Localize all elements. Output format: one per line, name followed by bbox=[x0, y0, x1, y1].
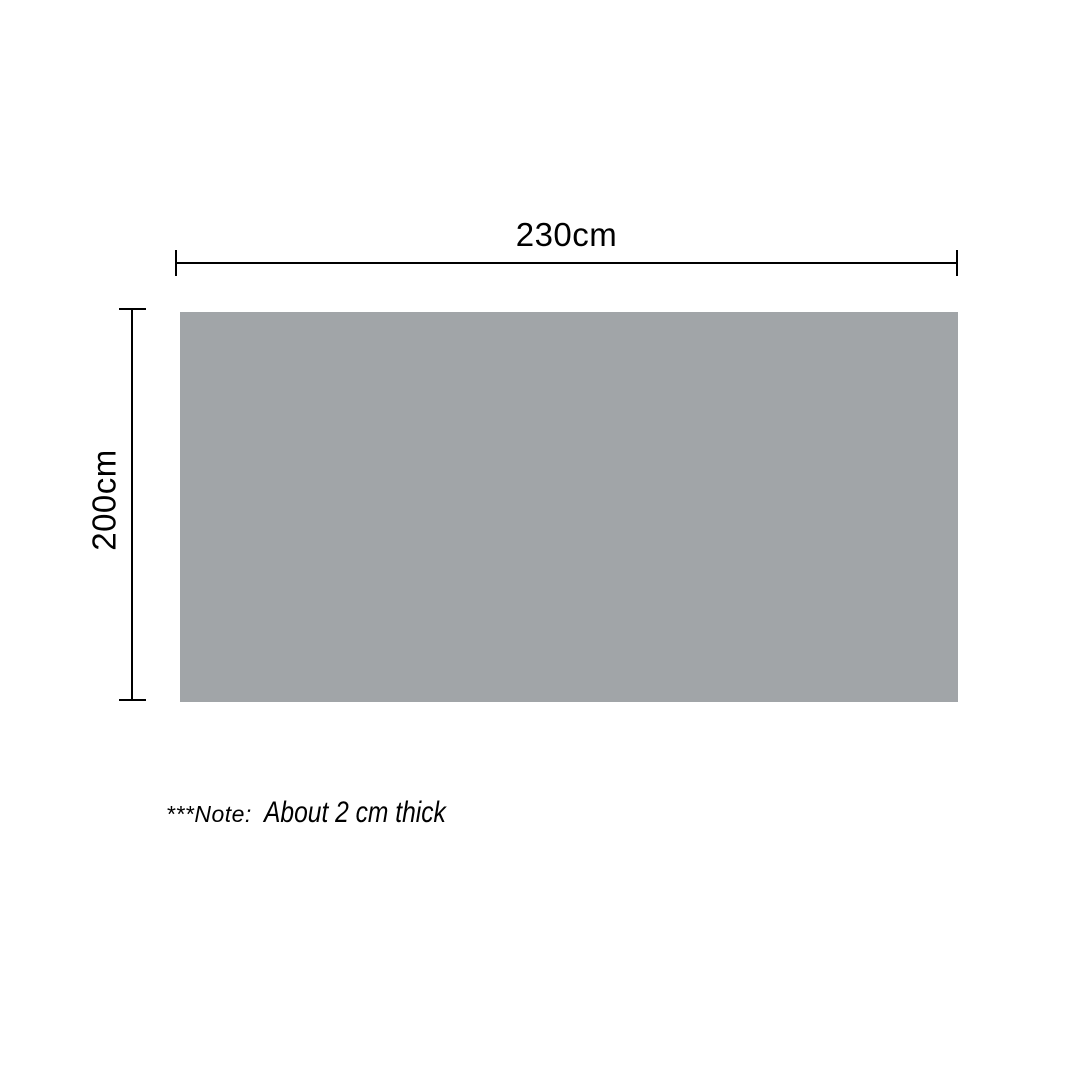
height-dimension-line bbox=[131, 308, 133, 701]
height-dimension-tick-bottom bbox=[119, 699, 146, 701]
thickness-note-text: About 2 cm thick bbox=[264, 796, 446, 830]
height-dimension-tick-top bbox=[119, 308, 146, 310]
width-dimension-label: 230cm bbox=[175, 218, 958, 251]
thickness-note: ***Note: About 2 cm thick bbox=[166, 796, 486, 830]
width-dimension-tick-right bbox=[956, 250, 958, 276]
width-dimension-line bbox=[175, 262, 958, 264]
dimension-diagram-canvas: 230cm 200cm ***Note: About 2 cm thick bbox=[0, 0, 1080, 1080]
product-rectangle bbox=[180, 312, 958, 702]
width-dimension-tick-left bbox=[175, 250, 177, 276]
height-dimension-label: 200cm bbox=[88, 449, 121, 551]
thickness-note-prefix: ***Note: bbox=[166, 801, 252, 828]
